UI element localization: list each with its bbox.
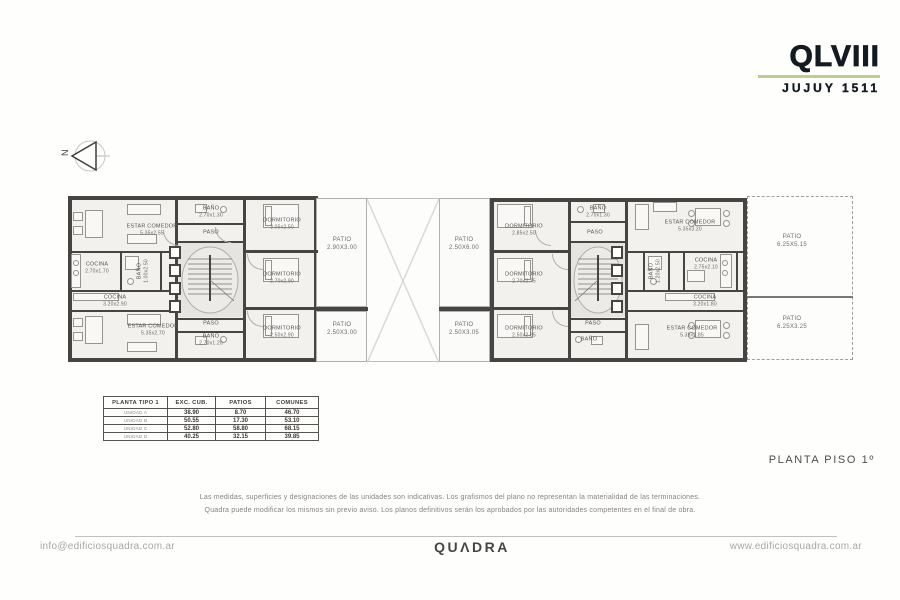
logo-subtitle: JUJUY 1511	[758, 81, 880, 95]
furniture-table	[85, 210, 103, 238]
furniture-burner	[73, 270, 79, 276]
footer-divider	[75, 536, 837, 537]
stair-drawing	[178, 243, 243, 317]
furniture-burner	[722, 260, 728, 266]
elevator-box	[169, 282, 181, 295]
elevator-box	[169, 300, 181, 313]
elevator-box	[169, 246, 181, 259]
disclaimer-line2: Quadra puede modificar los mismos sin pr…	[130, 504, 770, 517]
wall	[628, 310, 744, 312]
patio-label: PATIO2.90X3.00	[327, 237, 357, 253]
furniture-chair	[723, 322, 730, 329]
wall	[570, 331, 626, 333]
logo-title: QLVIII	[758, 42, 880, 72]
wall	[120, 252, 122, 291]
wall	[628, 290, 744, 292]
wall	[178, 223, 244, 225]
furniture-chair	[723, 210, 730, 217]
patio-far-block	[747, 196, 853, 360]
table-row: UNIDAD A 38.90 8.70 46.70	[104, 409, 319, 417]
furniture-table	[85, 316, 103, 344]
wall	[493, 250, 569, 253]
furniture-sofa	[635, 324, 649, 350]
furniture-toilet	[127, 278, 134, 285]
wall	[246, 307, 318, 310]
footer-website: www.edificiosquadra.com.ar	[730, 541, 862, 552]
wall	[570, 221, 626, 223]
patio-label: PATIO2.50X6.00	[449, 237, 479, 253]
patio-label: PATIO6.25X5.15	[777, 234, 807, 250]
table-row: UNIDAD D 40.25 32.15 39.85	[104, 433, 319, 441]
room-label-estar-comedor: ESTAR COMEDOR5.35x2.55	[127, 223, 178, 236]
furniture-chair	[73, 318, 83, 327]
plan-sheet: QLVIII JUJUY 1511 N	[0, 0, 900, 600]
room-label-dormitorio: DORMITORIO2.70x2.75	[505, 271, 543, 284]
room-label-bano: BAÑO	[581, 337, 597, 344]
furniture-chair	[688, 210, 695, 217]
furniture-toilet	[577, 206, 584, 213]
furniture-burner	[73, 260, 79, 266]
room-label-dormitorio: DORMITORIO3.05x2.50	[263, 217, 301, 230]
room-label-estar-comedor: ESTAR COMEDOR5.35x2.85	[667, 325, 718, 338]
wall	[668, 252, 670, 291]
logo: QLVIII JUJUY 1511	[758, 42, 880, 95]
col-header-comunes: COMUNES	[266, 397, 319, 409]
room-label-cocina: COCINA2.70x1.70	[85, 261, 109, 274]
furniture-sofa	[635, 204, 649, 230]
room-label-paso: PASO	[203, 230, 219, 237]
stair-core-left	[178, 243, 243, 317]
wall	[246, 250, 318, 253]
wall	[493, 307, 569, 310]
patio-label: PATIO2.50X3.05	[449, 322, 479, 338]
logo-underline	[758, 75, 880, 78]
north-arrow-icon: N	[54, 128, 112, 184]
room-label-paso: PASO	[587, 230, 603, 237]
wall	[439, 307, 491, 311]
room-label-estar-comedor: ESTAR COMEDOR5.35x3.20	[665, 219, 716, 232]
room-label-bano: BAÑO1.00x2.50	[136, 259, 149, 283]
room-label-paso: PASO	[585, 321, 601, 328]
furniture-sofa	[127, 204, 161, 215]
wall	[736, 252, 738, 291]
table-row: UNIDAD C 52.80 58.80 68.15	[104, 425, 319, 433]
wall	[72, 310, 176, 312]
courtyard-cross-lines	[367, 199, 439, 363]
furniture-burner	[722, 270, 728, 276]
elevator-box	[169, 264, 181, 277]
room-label-estar-comedor: ESTAR COMEDOR5.35x2.70	[128, 323, 179, 336]
elevator-box	[611, 264, 623, 277]
furniture-sofa	[127, 342, 157, 352]
wall	[643, 252, 645, 291]
furniture-chair	[73, 226, 83, 235]
patio-label: PATIO2.50X3.00	[327, 322, 357, 338]
furniture-kitchen-island	[687, 270, 705, 282]
elevator-box	[611, 282, 623, 295]
room-label-bano: BAÑO2.70x1.30	[199, 205, 223, 218]
furniture-chair	[73, 212, 83, 221]
col-header-patios: PATIOS	[216, 397, 266, 409]
disclaimer-line1: Las medidas, superficies y designaciones…	[130, 491, 770, 504]
elevator-box	[611, 300, 623, 313]
wall	[683, 252, 685, 291]
patio-label: PATIO6.25X3.25	[777, 316, 807, 332]
disclaimer: Las medidas, superficies y designaciones…	[130, 491, 770, 517]
furniture-chair	[723, 332, 730, 339]
footer-email: info@edificiosquadra.com.ar	[40, 541, 175, 552]
patio-divider-wall	[747, 296, 853, 298]
footer-brand: QUΛDRA	[434, 539, 510, 555]
furniture-sofa	[653, 202, 677, 212]
table-row: UNIDAD B 50.55 17.30 53.10	[104, 417, 319, 425]
plan-title: PLANTA PISO 1º	[769, 454, 875, 466]
room-label-cocina: COCINA2.75x2.10	[694, 257, 718, 270]
room-label-dormitorio: DORMITORIO2.50x2.85	[505, 325, 543, 338]
furniture-chair	[73, 332, 83, 341]
room-label-bano: BAÑO2.70x1.20	[199, 333, 223, 346]
room-label-bano: BAÑO1.20x2.50	[648, 259, 661, 283]
room-label-bano: BAÑO2.70x1.30	[586, 205, 610, 218]
units-summary-table: PLANTA TIPO 1 EXC. CUB. PATIOS COMUNES U…	[103, 396, 319, 441]
elevator-box	[611, 246, 623, 259]
north-label: N	[60, 150, 70, 157]
table-header-row: PLANTA TIPO 1 EXC. CUB. PATIOS COMUNES	[104, 397, 319, 409]
wall	[316, 307, 368, 311]
room-label-dormitorio: DORMITORIO2.85x2.50	[505, 223, 543, 236]
wall	[243, 196, 246, 362]
central-courtyard	[367, 198, 439, 362]
room-label-dormitorio: DORMITORIO2.50x2.90	[263, 325, 301, 338]
floor-plan: ESTAR COMEDOR5.35x2.55 COCINA2.70x1.70 B…	[65, 190, 855, 368]
room-label-cocina: COCINA3.20x2.90	[103, 294, 127, 307]
wall	[160, 252, 162, 291]
furniture-chair	[723, 220, 730, 227]
room-label-paso: PASO	[203, 321, 219, 328]
room-label-dormitorio: DORMITORIO2.70x2.90	[263, 271, 301, 284]
room-label-cocina: COCINA3.20x1.80	[693, 294, 717, 307]
wall	[628, 251, 744, 253]
col-header-exc-cub: EXC. CUB.	[168, 397, 216, 409]
col-header-planta-tipo: PLANTA TIPO 1	[104, 397, 168, 409]
